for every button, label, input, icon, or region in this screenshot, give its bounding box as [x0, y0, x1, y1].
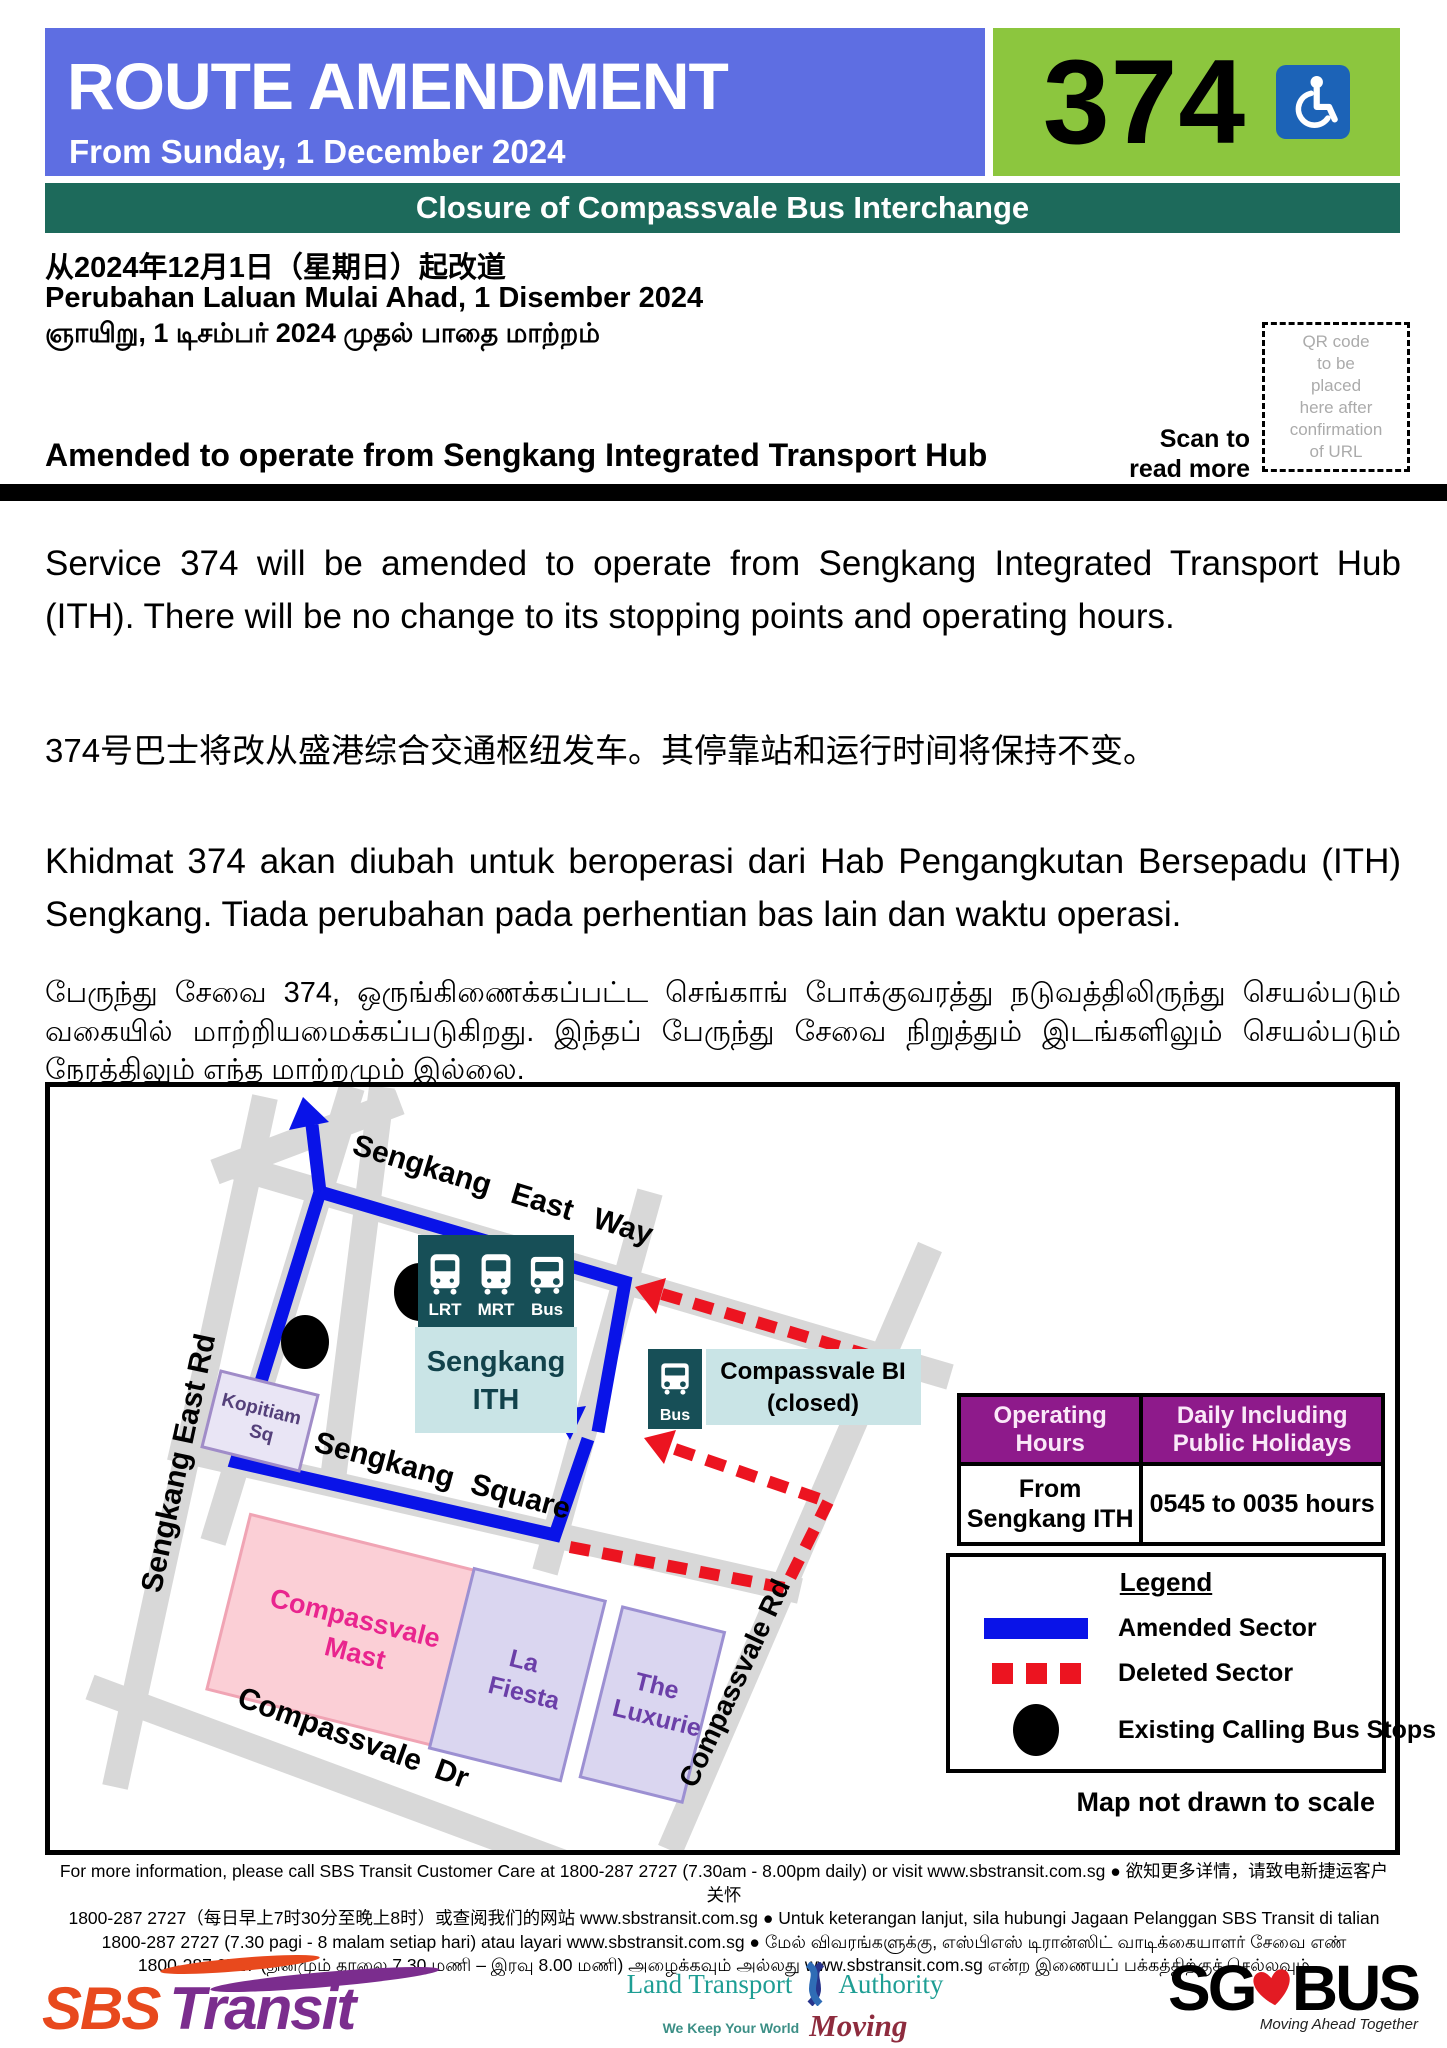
- body-paragraph-malay: Khidmat 374 akan diubah untuk beroperasi…: [45, 836, 1401, 941]
- mrt-icon-label: MRT: [478, 1300, 515, 1319]
- lta-moving-script: Moving: [809, 2008, 907, 2044]
- amended-sector-swatch: [984, 1618, 1088, 1639]
- body-paragraph-english: Service 374 will be amended to operate f…: [45, 538, 1401, 643]
- footer-line-1: For more information, please call SBS Tr…: [58, 1860, 1390, 1907]
- service-number-panel: 374: [993, 28, 1400, 176]
- legend-label-stops: Existing Calling Bus Stops: [1118, 1716, 1436, 1745]
- legend-item-deleted: Deleted Sector: [976, 1659, 1382, 1688]
- deleted-sector-swatch: [992, 1663, 1081, 1684]
- legend-box: Legend Amended Sector Deleted Sector Exi…: [946, 1553, 1386, 1773]
- table-header-operating-hours: Operating Hours: [959, 1395, 1141, 1464]
- sbs-logo-text-1: SBS: [42, 1975, 159, 2042]
- divider-bar: [0, 484, 1447, 501]
- bi-bus-icon-label: Bus: [660, 1407, 690, 1424]
- table-cell-hours: 0545 to 0035 hours: [1141, 1464, 1383, 1544]
- sengkang-ith-label-group: LRT MRT Bus Sengkang ITH: [415, 1235, 577, 1433]
- footer-line-3: 1800-287 2727 (7.30 pagi - 8 malam setia…: [58, 1931, 1390, 1955]
- subtitle-malay: Perubahan Laluan Mulai Ahad, 1 Disember …: [45, 282, 703, 315]
- bus-stop-swatch: [1013, 1704, 1059, 1756]
- subtitle-tamil: ஞாயிறு, 1 டிசம்பர் 2024 முதல் பாதை மாற்ற…: [45, 318, 600, 353]
- legend-label-deleted: Deleted Sector: [1118, 1659, 1293, 1688]
- scan-to-read-more: Scan to read more: [1078, 424, 1250, 484]
- amendment-headline: Amended to operate from Sengkang Integra…: [45, 437, 987, 474]
- lta-ribbon-icon: [798, 1962, 832, 2006]
- sbs-transit-logo: SBSTransit: [42, 1952, 432, 2044]
- compassvale-bi-label-group: Bus Compassvale BI (closed): [648, 1349, 921, 1429]
- lta-logo-text-2: Authority: [838, 1969, 943, 2000]
- service-number: 374: [1043, 42, 1246, 162]
- ith-name-line2: ITH: [473, 1384, 520, 1416]
- map-scale-note: Map not drawn to scale: [1076, 1787, 1375, 1818]
- lta-tagline: We Keep Your World: [663, 2020, 800, 2044]
- sbs-logo-text-2: Transit: [169, 1975, 354, 2042]
- table-header-row: Operating Hours Daily Including Public H…: [959, 1395, 1383, 1464]
- scan-line-2: read more: [1078, 454, 1250, 484]
- sgbus-text-1: SG: [1168, 1956, 1254, 2020]
- legend-item-stops: Existing Calling Bus Stops: [976, 1704, 1382, 1756]
- table-row: From Sengkang ITH 0545 to 0035 hours: [959, 1464, 1383, 1544]
- scan-line-1: Scan to: [1078, 424, 1250, 454]
- legend-item-amended: Amended Sector: [976, 1614, 1382, 1643]
- notice-title-banner: Closure of Compassvale Bus Interchange: [45, 183, 1400, 233]
- table-cell-from: From Sengkang ITH: [959, 1464, 1141, 1544]
- bus-icon-label: Bus: [531, 1300, 563, 1319]
- ith-name-line1: Sengkang: [427, 1346, 566, 1378]
- sg-bus-logo: SG BUS Moving Ahead Together: [1168, 1956, 1418, 2033]
- bi-name-line2: (closed): [767, 1390, 859, 1417]
- legend-title: Legend: [950, 1567, 1382, 1598]
- lta-logo-text-1: Land Transport: [627, 1969, 793, 2000]
- body-paragraph-tamil: பேருந்து சேவை 374, ஒருங்கிணைக்கப்பட்ட செ…: [45, 974, 1401, 1090]
- notice-title: Closure of Compassvale Bus Interchange: [416, 190, 1029, 226]
- ith-name-box: [415, 1327, 577, 1433]
- bus-stop-dot-1: [281, 1315, 329, 1369]
- footer-line-2: 1800-287 2727（每日早上7时30分至晚上8时）或查阅我们的网站 ww…: [58, 1907, 1390, 1931]
- legend-label-amended: Amended Sector: [1118, 1614, 1317, 1643]
- lrt-icon-label: LRT: [428, 1300, 462, 1319]
- route-map: LRT MRT Bus Sengkang ITH Bus Compassvale…: [45, 1082, 1400, 1855]
- page-title: ROUTE AMENDMENT: [67, 48, 728, 124]
- qr-placeholder-text: QR code to be placed here after confirma…: [1290, 331, 1383, 463]
- heart-icon: [1252, 1961, 1293, 2015]
- sgbus-text-2: BUS: [1292, 1956, 1418, 2020]
- wheelchair-icon: [1276, 65, 1350, 139]
- operating-hours-table: Operating Hours Daily Including Public H…: [957, 1393, 1385, 1546]
- table-header-daily: Daily Including Public Holidays: [1141, 1395, 1383, 1464]
- header-banner: ROUTE AMENDMENT From Sunday, 1 December …: [45, 28, 985, 176]
- qr-code-placeholder: QR code to be placed here after confirma…: [1262, 322, 1410, 472]
- bi-name-line1: Compassvale BI: [720, 1358, 905, 1385]
- red-arrow-bi-exit: [644, 1430, 676, 1464]
- body-paragraph-chinese: 374号巴士将改从盛港综合交通枢纽发车。其停靠站和运行时间将保持不变。: [45, 724, 1401, 772]
- subtitle-chinese: 从2024年12月1日（星期日）起改道: [45, 244, 506, 286]
- poster-page: ROUTE AMENDMENT From Sunday, 1 December …: [0, 0, 1447, 2048]
- lta-logo: Land Transport Authority We Keep Your Wo…: [610, 1962, 960, 2044]
- effective-date: From Sunday, 1 December 2024: [69, 133, 565, 171]
